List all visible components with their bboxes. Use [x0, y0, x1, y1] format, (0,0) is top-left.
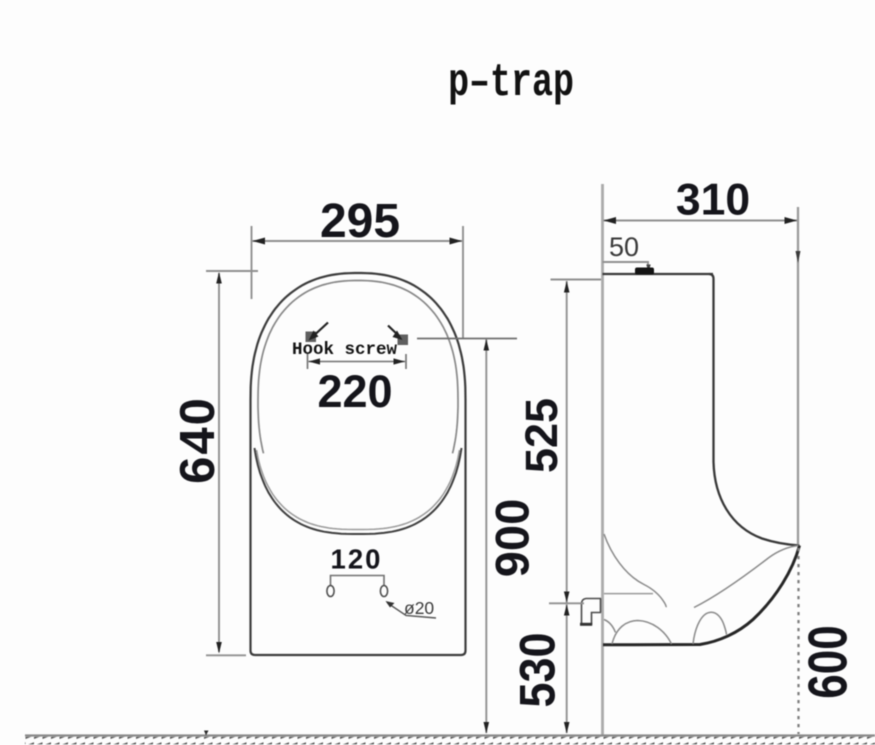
svg-text:900: 900: [486, 499, 539, 577]
svg-text:530: 530: [510, 632, 566, 707]
svg-text:ø20: ø20: [404, 598, 434, 618]
svg-text:295: 295: [320, 195, 400, 248]
svg-text:640: 640: [171, 396, 225, 484]
svg-text:p–trap: p–trap: [448, 58, 574, 110]
svg-text:525: 525: [516, 398, 567, 473]
svg-text:120: 120: [331, 544, 383, 575]
svg-text:220: 220: [317, 366, 392, 417]
svg-text:600: 600: [797, 625, 859, 698]
svg-text:310: 310: [676, 176, 750, 225]
svg-text:50: 50: [609, 232, 639, 262]
